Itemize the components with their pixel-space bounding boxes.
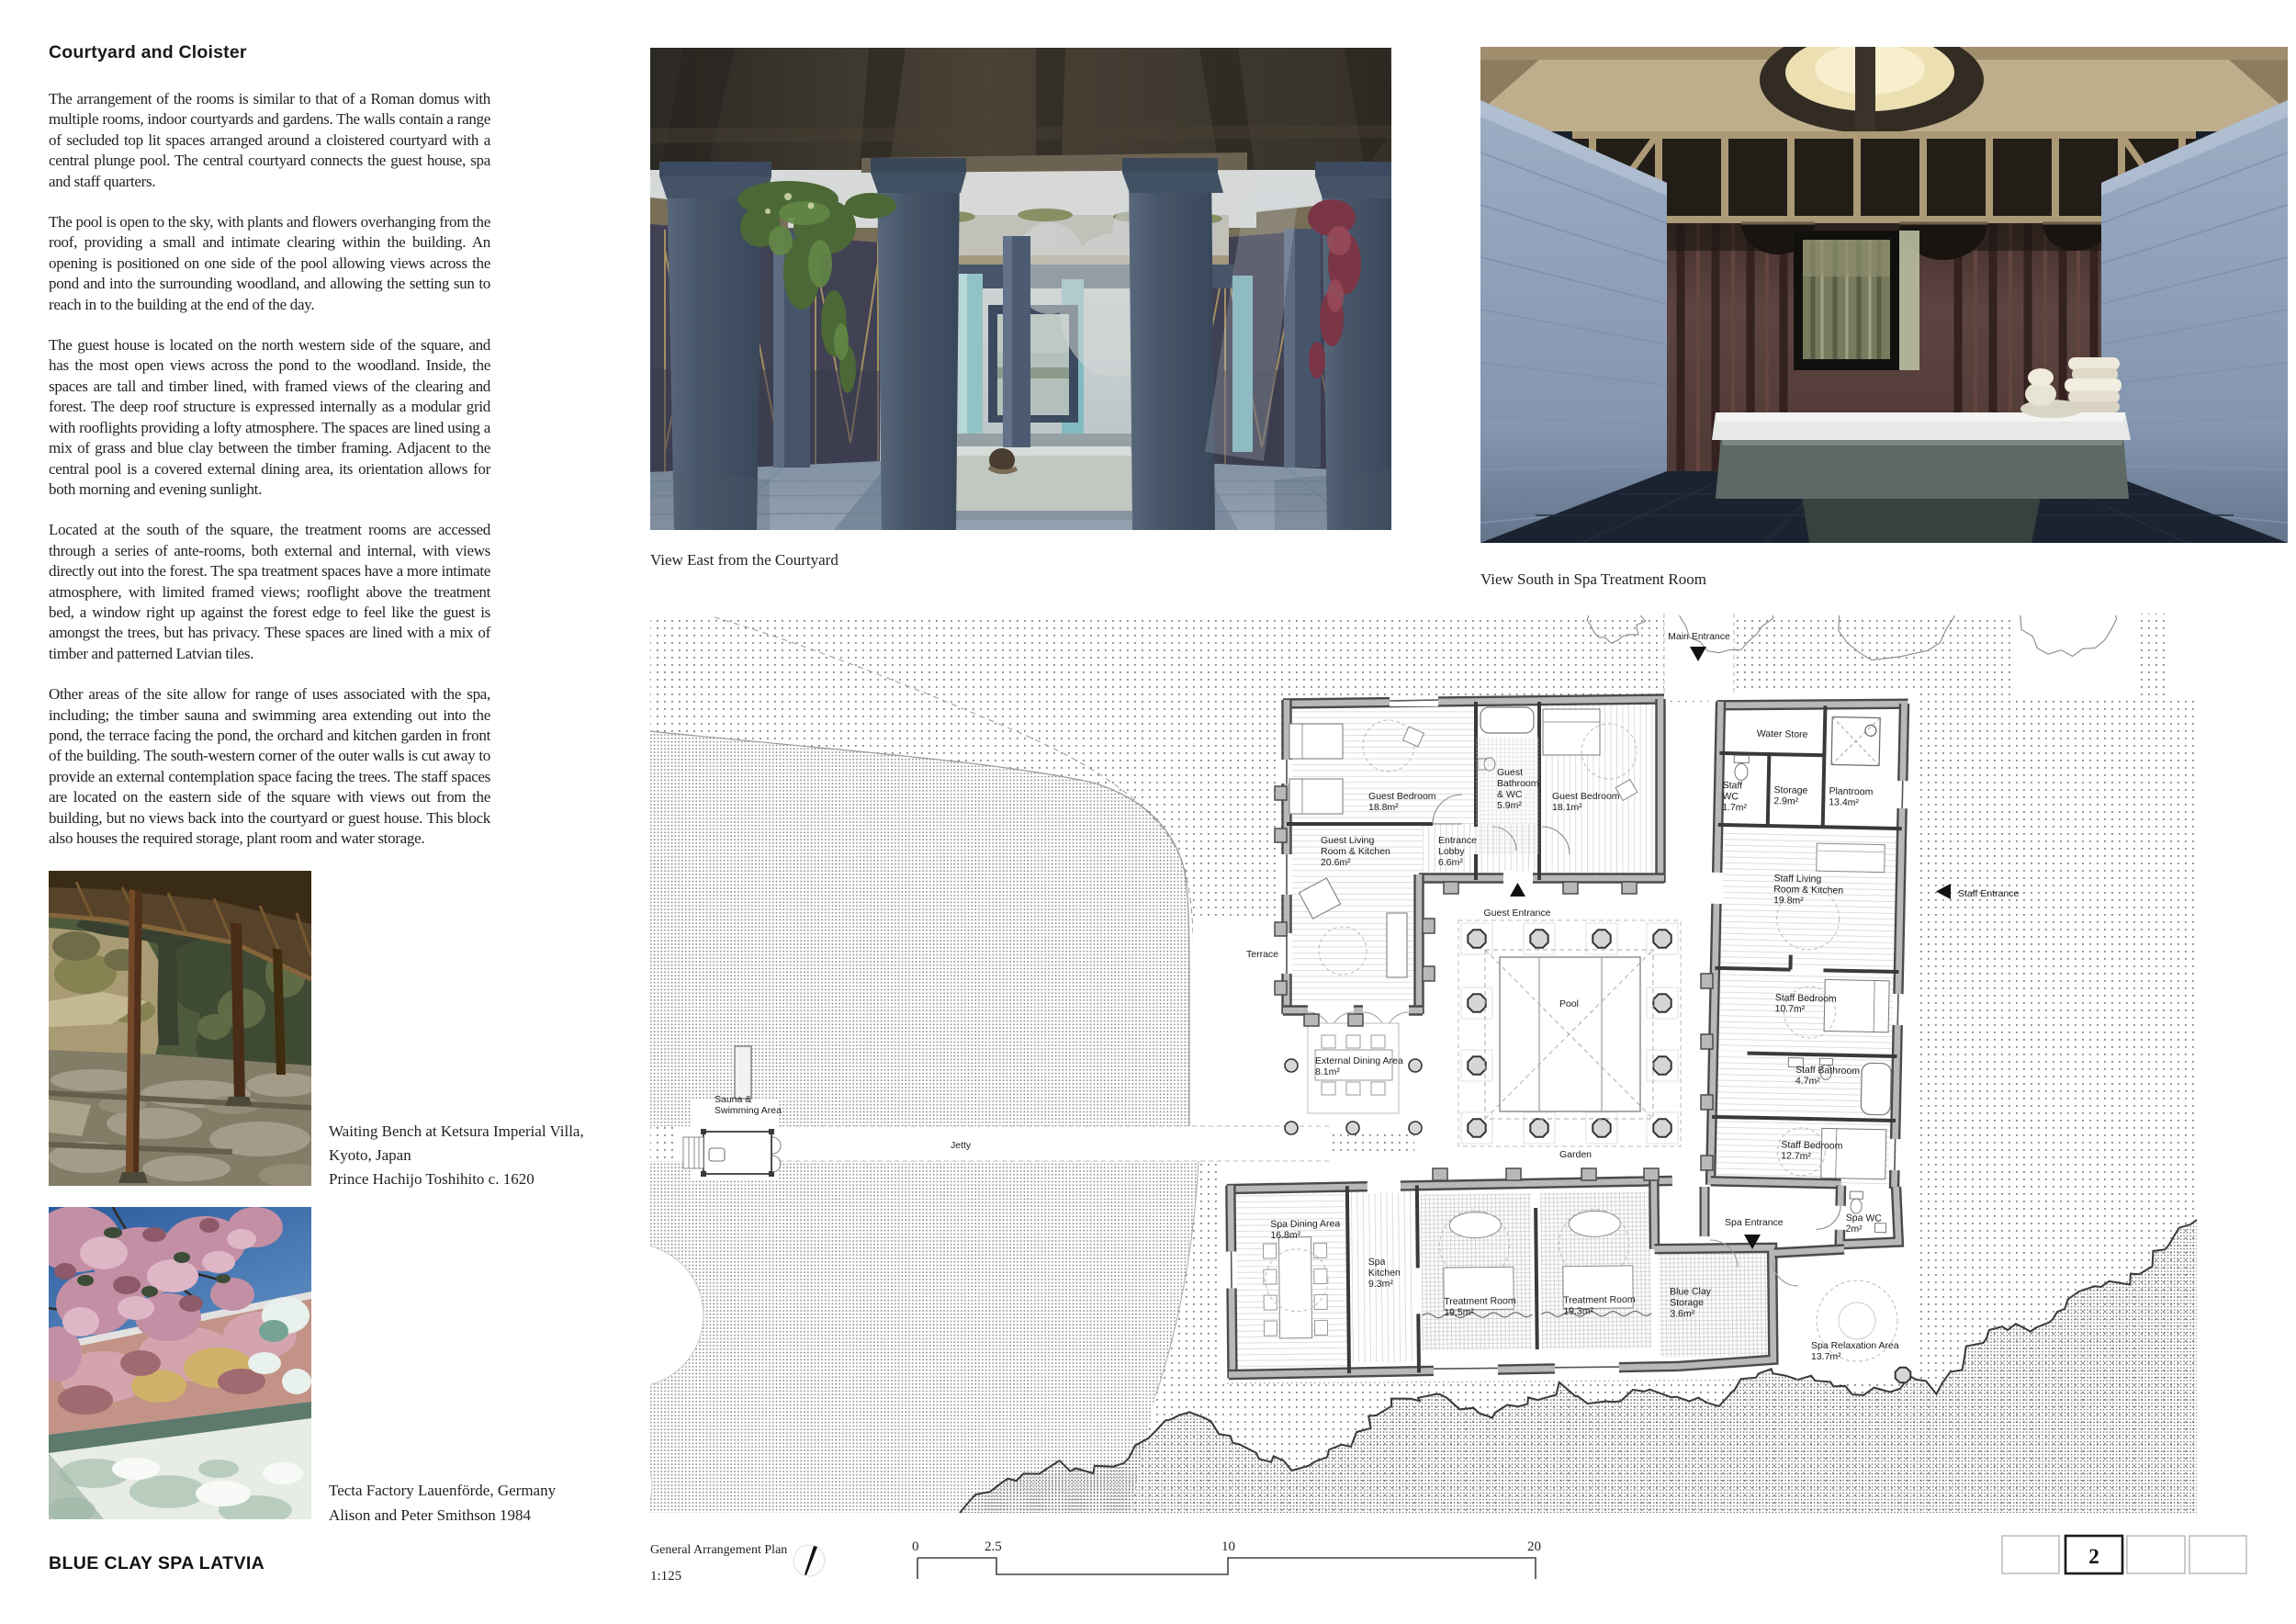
svg-text:WC: WC bbox=[1722, 791, 1739, 802]
svg-text:Treatment Room: Treatment Room bbox=[1563, 1294, 1636, 1306]
svg-text:1.7m²: 1.7m² bbox=[1722, 802, 1748, 814]
svg-text:Water Store: Water Store bbox=[1757, 728, 1808, 740]
svg-text:Swimming Area: Swimming Area bbox=[715, 1105, 782, 1116]
svg-text:20: 20 bbox=[1527, 1539, 1541, 1554]
svg-text:Room & Kitchen: Room & Kitchen bbox=[1321, 846, 1390, 857]
svg-text:19.5m²: 19.5m² bbox=[1444, 1307, 1474, 1318]
svg-text:Jetty: Jetty bbox=[951, 1140, 972, 1151]
svg-text:18.8m²: 18.8m² bbox=[1368, 802, 1399, 813]
svg-text:Staff: Staff bbox=[1723, 780, 1743, 791]
svg-text:Garden: Garden bbox=[1559, 1149, 1592, 1160]
svg-text:Spa: Spa bbox=[1368, 1257, 1386, 1268]
svg-text:19.8m²: 19.8m² bbox=[1773, 895, 1804, 907]
svg-text:Main Entrance: Main Entrance bbox=[1668, 631, 1730, 642]
svg-text:0: 0 bbox=[912, 1539, 919, 1554]
svg-text:General Arrangement Plan: General Arrangement Plan bbox=[650, 1543, 787, 1557]
svg-text:2.9m²: 2.9m² bbox=[1773, 795, 1799, 807]
svg-text:Spa Relaxation Area: Spa Relaxation Area bbox=[1811, 1340, 1899, 1351]
svg-text:6.6m²: 6.6m² bbox=[1438, 857, 1463, 868]
svg-text:2: 2 bbox=[2088, 1545, 2099, 1568]
svg-text:10: 10 bbox=[1221, 1539, 1235, 1554]
svg-text:13.7m²: 13.7m² bbox=[1811, 1351, 1841, 1362]
svg-text:Kitchen: Kitchen bbox=[1368, 1268, 1401, 1279]
svg-text:Entrance: Entrance bbox=[1438, 835, 1477, 846]
svg-text:Plantroom: Plantroom bbox=[1829, 785, 1873, 797]
svg-text:8.1m²: 8.1m² bbox=[1315, 1066, 1340, 1077]
svg-text:10.7m²: 10.7m² bbox=[1774, 1003, 1805, 1015]
svg-text:Lobby: Lobby bbox=[1438, 846, 1465, 857]
svg-text:Guest: Guest bbox=[1497, 767, 1523, 778]
svg-text:Blue Clay: Blue Clay bbox=[1670, 1286, 1712, 1297]
svg-text:9.3m²: 9.3m² bbox=[1368, 1279, 1393, 1290]
svg-text:13.4m²: 13.4m² bbox=[1829, 796, 1859, 808]
svg-text:Guest Living: Guest Living bbox=[1321, 835, 1375, 846]
svg-text:Guest Bedroom: Guest Bedroom bbox=[1552, 791, 1620, 802]
svg-text:2m²: 2m² bbox=[1845, 1224, 1863, 1235]
svg-text:External Dining Area: External Dining Area bbox=[1315, 1055, 1403, 1066]
svg-text:Guest Bedroom: Guest Bedroom bbox=[1368, 791, 1436, 802]
svg-text:3.6m²: 3.6m² bbox=[1670, 1308, 1694, 1319]
svg-text:5.9m²: 5.9m² bbox=[1497, 800, 1522, 811]
svg-text:19.3m²: 19.3m² bbox=[1563, 1305, 1593, 1316]
svg-text:16.8m²: 16.8m² bbox=[1270, 1230, 1300, 1241]
svg-text:Sauna &: Sauna & bbox=[715, 1094, 751, 1105]
svg-text:Staff Entrance: Staff Entrance bbox=[1958, 888, 2020, 899]
svg-text:Spa WC: Spa WC bbox=[1846, 1212, 1883, 1224]
svg-text:4.7m²: 4.7m² bbox=[1795, 1076, 1821, 1088]
svg-text:& WC: & WC bbox=[1497, 789, 1523, 800]
svg-text:Guest Entrance: Guest Entrance bbox=[1484, 908, 1551, 919]
svg-text:Treatment Room: Treatment Room bbox=[1444, 1295, 1516, 1307]
svg-text:18.1m²: 18.1m² bbox=[1552, 802, 1582, 813]
svg-text:20.6m²: 20.6m² bbox=[1321, 857, 1351, 868]
svg-text:Storage: Storage bbox=[1773, 784, 1807, 796]
svg-text:Spa Entrance: Spa Entrance bbox=[1725, 1217, 1784, 1228]
svg-text:Storage: Storage bbox=[1670, 1297, 1704, 1308]
svg-text:12.7m²: 12.7m² bbox=[1781, 1150, 1811, 1162]
svg-text:2.5: 2.5 bbox=[985, 1539, 1002, 1554]
svg-text:Staff Living: Staff Living bbox=[1773, 873, 1821, 885]
svg-text:Pool: Pool bbox=[1559, 998, 1579, 1009]
svg-text:Terrace: Terrace bbox=[1246, 949, 1278, 960]
svg-text:Spa Dining Area: Spa Dining Area bbox=[1270, 1218, 1340, 1230]
svg-text:1:125: 1:125 bbox=[650, 1569, 681, 1584]
svg-text:Bathroom: Bathroom bbox=[1497, 778, 1539, 789]
